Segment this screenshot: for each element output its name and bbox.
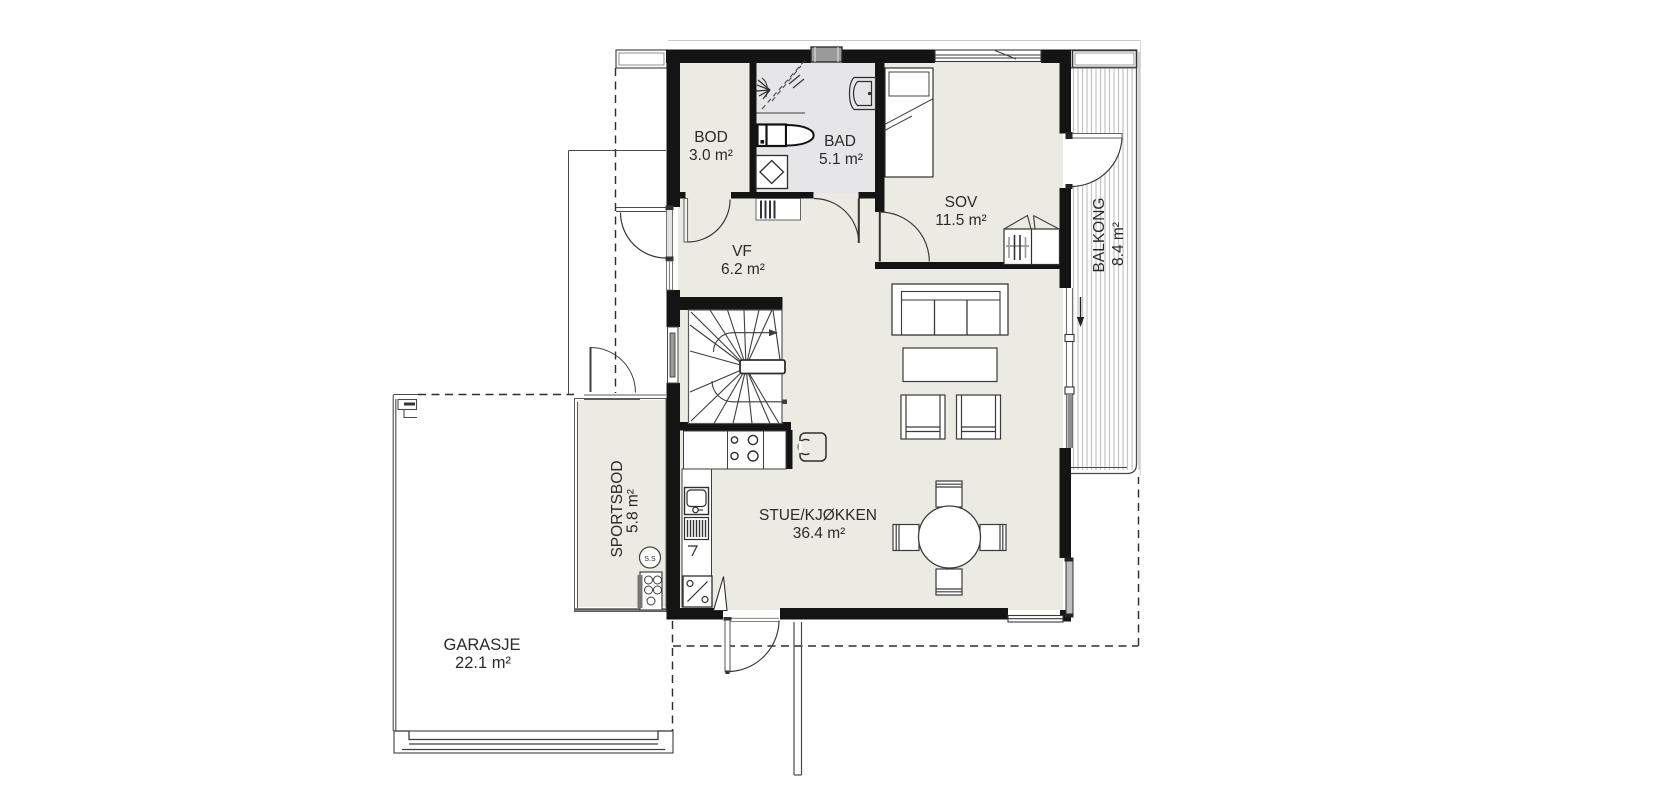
svg-text:BALKONG: BALKONG [1091,198,1108,273]
svg-text:3.0 m²: 3.0 m² [689,147,733,164]
svg-text:6.2 m²: 6.2 m² [721,261,765,278]
svg-text:BOD: BOD [694,129,728,146]
svg-text:5.8 m²: 5.8 m² [625,489,642,533]
svg-text:11.5 m²: 11.5 m² [935,212,986,229]
svg-text:STUE/KJØKKEN: STUE/KJØKKEN [759,507,877,524]
svg-text:GARASJE: GARASJE [443,636,520,654]
svg-text:SPORTSBOD: SPORTSBOD [609,460,626,557]
svg-text:5.1 m²: 5.1 m² [819,151,863,168]
svg-text:36.4 m²: 36.4 m² [793,525,846,542]
svg-text:VF: VF [732,243,752,260]
svg-text:BAD: BAD [824,133,856,150]
svg-text:S.S: S.S [644,556,656,563]
svg-text:22.1 m²: 22.1 m² [455,654,511,672]
svg-text:SOV: SOV [945,194,978,211]
svg-text:8.4 m²: 8.4 m² [1110,222,1127,266]
